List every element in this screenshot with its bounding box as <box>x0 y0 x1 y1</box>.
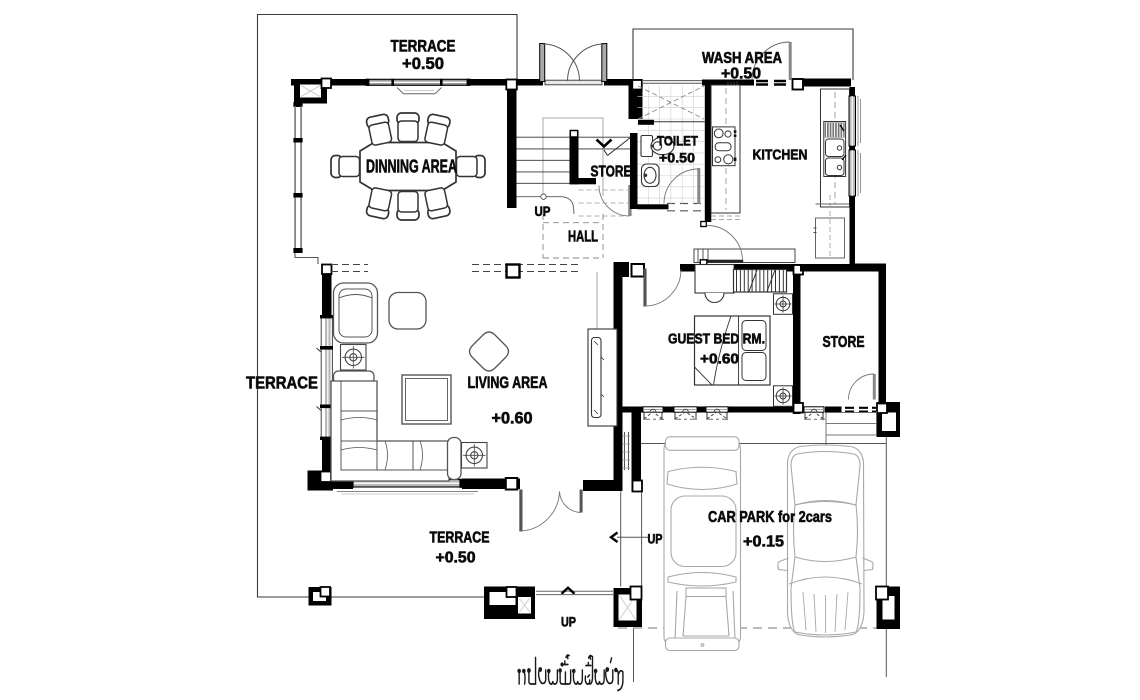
svg-text:+0.60: +0.60 <box>492 409 533 428</box>
svg-text:UP: UP <box>535 204 551 219</box>
svg-text:DINNING AREA: DINNING AREA <box>366 157 457 177</box>
svg-text:GUEST BED RM.: GUEST BED RM. <box>668 331 765 348</box>
svg-text:+0.15: +0.15 <box>743 534 784 551</box>
svg-text:CAR PARK for 2cars: CAR PARK for 2cars <box>708 509 832 526</box>
svg-text:+0.50: +0.50 <box>721 66 761 83</box>
svg-text:+0.60: +0.60 <box>700 351 739 368</box>
svg-text:+0.50: +0.50 <box>436 550 476 567</box>
svg-text:KITCHEN: KITCHEN <box>753 148 808 164</box>
svg-text:STORE: STORE <box>591 164 632 181</box>
svg-text:UP: UP <box>648 532 663 547</box>
svg-text:+0.50: +0.50 <box>659 150 695 166</box>
svg-text:LIVING AREA: LIVING AREA <box>468 373 548 392</box>
svg-text:+0.50: +0.50 <box>402 55 444 73</box>
svg-text:STORE: STORE <box>823 334 865 351</box>
svg-text:TOILET: TOILET <box>657 133 698 149</box>
svg-text:WASH AREA: WASH AREA <box>702 50 782 67</box>
svg-text:TERRACE: TERRACE <box>430 530 490 547</box>
svg-text:TERRACE: TERRACE <box>391 38 456 56</box>
svg-text:HALL: HALL <box>568 229 598 246</box>
svg-text:TERRACE: TERRACE <box>246 373 318 393</box>
svg-text:UP: UP <box>561 615 576 630</box>
